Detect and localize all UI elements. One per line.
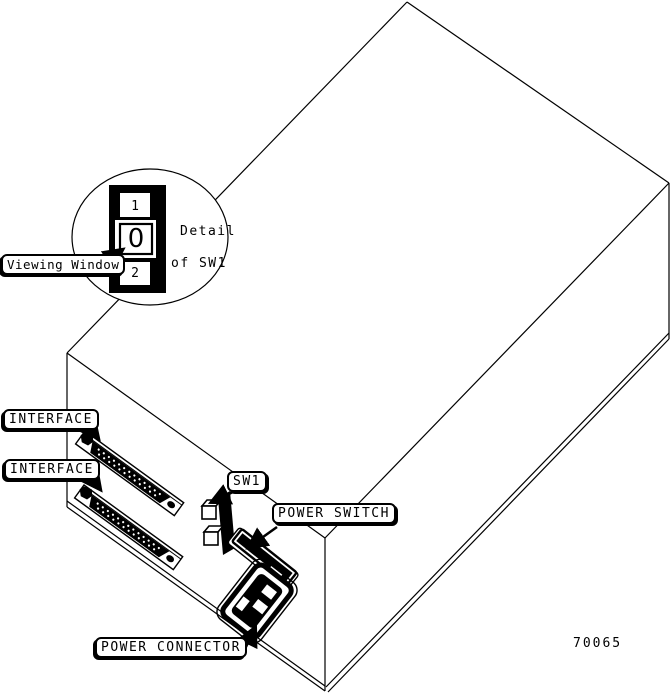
switch-position-0: 0 [120, 224, 152, 254]
label-interface-2: INTERFACE [4, 459, 100, 480]
label-interface-1: INTERFACE [3, 409, 99, 430]
detail-caption-line2: of SW1 [171, 256, 227, 271]
label-sw1: SW1 [227, 471, 267, 492]
label-power-connector: POWER CONNECTOR [95, 637, 247, 658]
figure-rear-view-drive-enclosure: 1 0 2 Detail of SW1 Viewing Window INTER… [0, 0, 671, 695]
isometric-enclosure-drawing [0, 0, 671, 695]
label-power-switch: POWER SWITCH [272, 503, 396, 524]
switch-position-1: 1 [120, 196, 150, 218]
enclosure-outline [67, 2, 669, 692]
figure-part-number: 70065 [573, 636, 622, 651]
label-viewing-window: Viewing Window [1, 254, 125, 275]
detail-caption-line1: Detail [180, 224, 236, 239]
